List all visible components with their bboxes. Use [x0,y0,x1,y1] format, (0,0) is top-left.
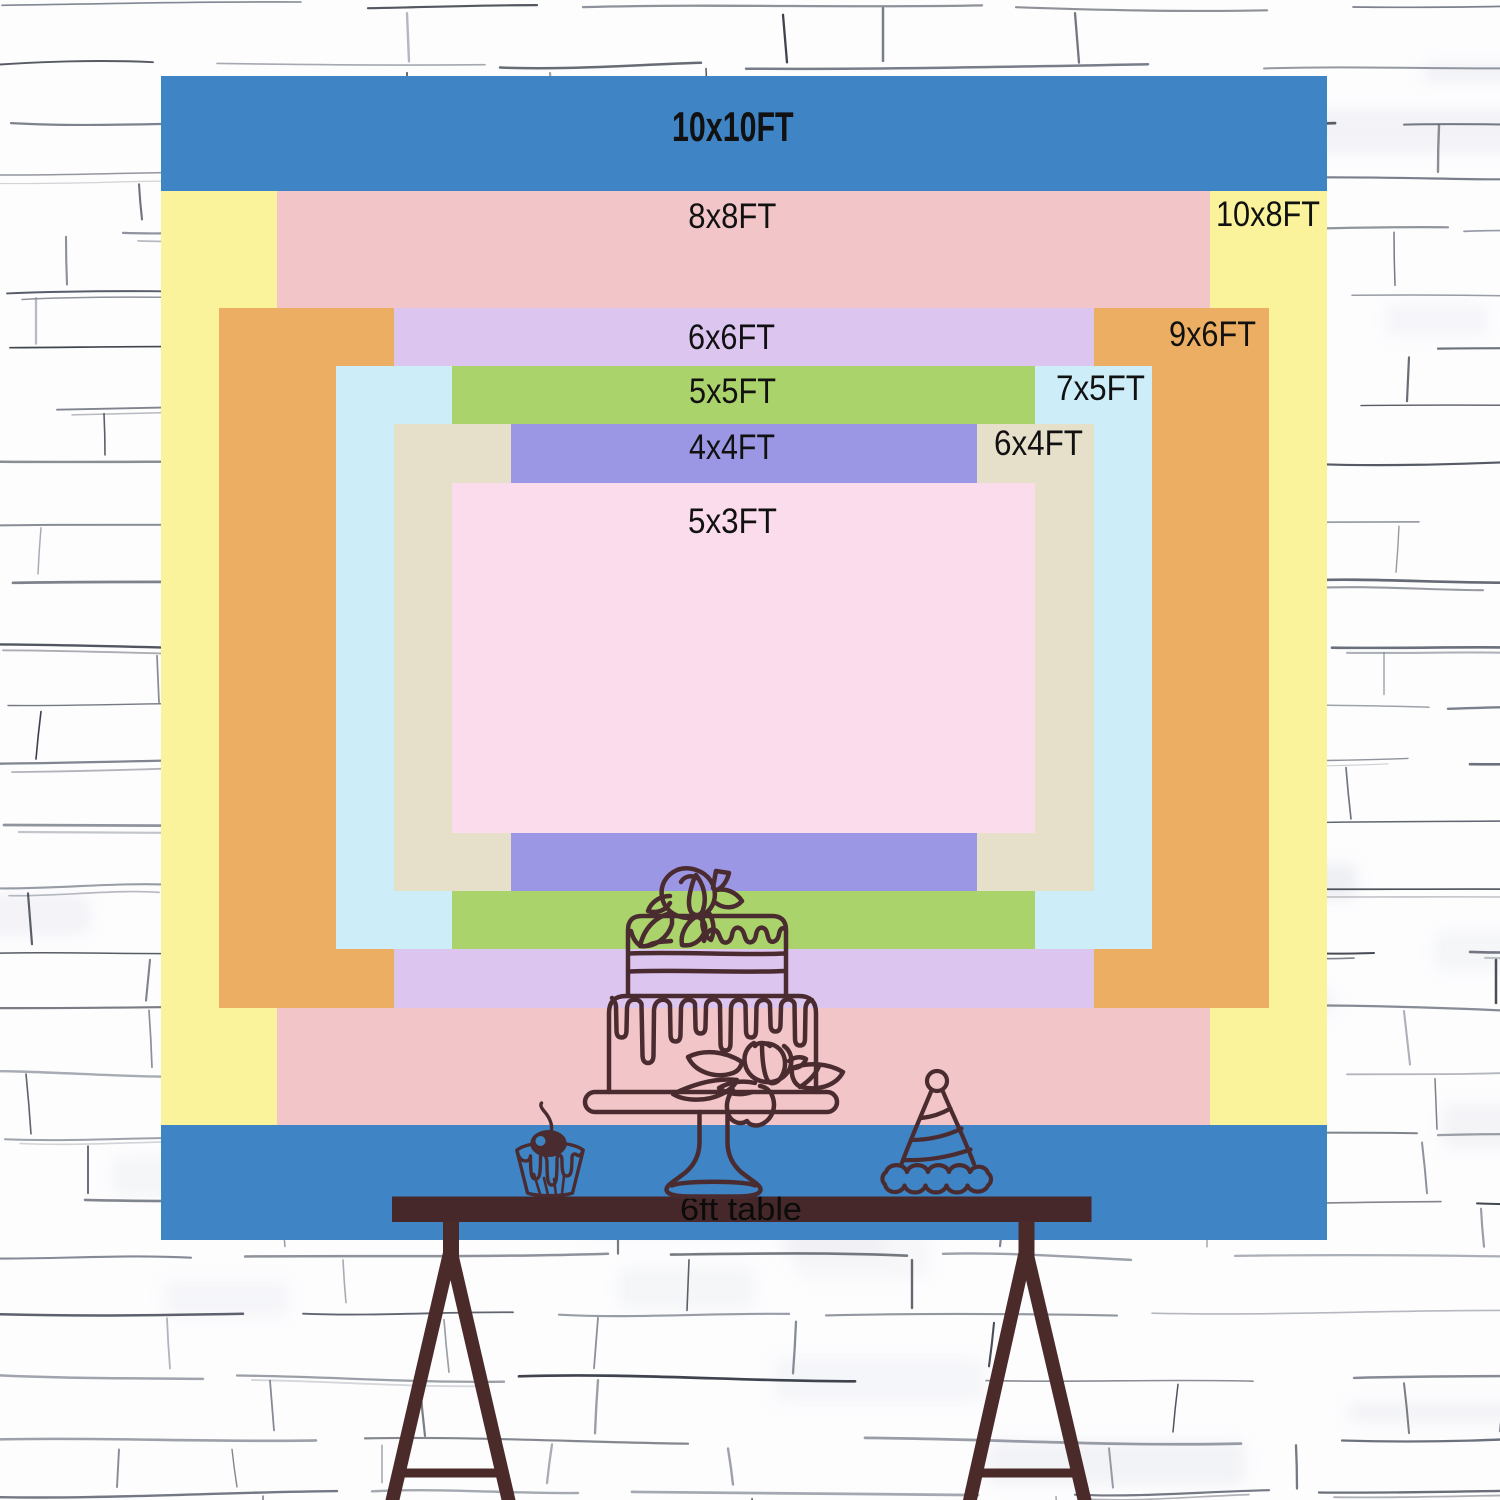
svg-text:10x8FT: 10x8FT [1216,195,1320,234]
svg-text:9x6FT: 9x6FT [1169,315,1256,354]
svg-text:5x5FT: 5x5FT [689,372,776,411]
svg-text:8x8FT: 8x8FT [688,197,776,236]
svg-text:7x5FT: 7x5FT [1056,369,1145,408]
svg-text:4x4FT: 4x4FT [689,428,775,467]
svg-text:5x3FT: 5x3FT [688,502,777,541]
svg-text:6x4FT: 6x4FT [994,424,1083,463]
svg-text:6x6FT: 6x6FT [688,318,775,357]
svg-text:10x10FT: 10x10FT [672,103,794,150]
